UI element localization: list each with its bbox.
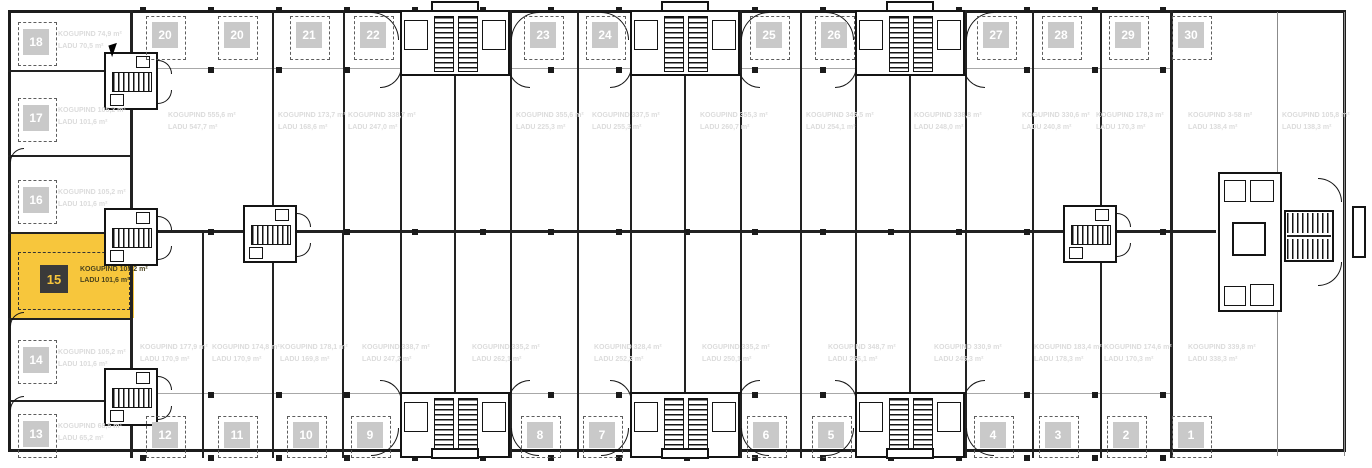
wall-corridor-outer [1344, 12, 1345, 456]
unit-area-label: KOGUPIND 105,2 m² [58, 347, 126, 358]
unit-badge-2[interactable]: 2 [1113, 422, 1139, 448]
corridor-link [909, 76, 911, 230]
hall-area-label: LADU 169,8 m² [280, 354, 329, 365]
unit-badge-21[interactable]: 21 [296, 22, 322, 48]
column-marker [1160, 7, 1166, 13]
wall-top-bay [577, 10, 579, 232]
hall-area-label: KOGUPIND 178,3 m² [1096, 110, 1164, 121]
wall-top-bay [740, 10, 742, 232]
vestibule [886, 1, 934, 12]
column-marker [1092, 67, 1098, 73]
stair-flight [1287, 213, 1331, 233]
unit-badge-3[interactable]: 3 [1045, 422, 1071, 448]
wall-bottom-bay [800, 232, 802, 458]
wc-room [859, 20, 883, 50]
unit-badge-18[interactable]: 18 [23, 29, 49, 55]
column-marker [276, 455, 282, 461]
unit-badge-27[interactable]: 27 [983, 22, 1009, 48]
wall-top-bay [965, 10, 967, 232]
column-marker [344, 7, 350, 13]
column-marker [1024, 67, 1030, 73]
corridor-link [454, 232, 456, 392]
unit-badge-12[interactable]: 12 [152, 422, 178, 448]
column-marker [820, 67, 826, 73]
wc-room [275, 209, 289, 221]
wc-room [1069, 247, 1083, 259]
hall-area-label: LADU 245,3 m² [934, 354, 983, 365]
column-marker [820, 229, 826, 235]
wc-room [1095, 209, 1109, 221]
wc-room [937, 402, 961, 432]
column-marker [1092, 392, 1098, 398]
wc-room [482, 20, 506, 50]
wall-right-section [1170, 10, 1173, 458]
hall-area-label: LADU 247,2 m² [362, 354, 411, 365]
wc-room [249, 247, 263, 259]
unit-badge-9[interactable]: 9 [357, 422, 383, 448]
hall-area-label: KOGUPIND 337,5 m² [592, 110, 660, 121]
stair-flight [688, 16, 708, 72]
unit-badge-1[interactable]: 1 [1178, 422, 1204, 448]
column-marker [548, 392, 554, 398]
hall-area-label: LADU 260,7 m² [700, 122, 749, 133]
unit-area-label: KOGUPIND 105,2 m² [58, 187, 126, 198]
hall-area-label: LADU 254,1 m² [806, 122, 855, 133]
stair-divider [1287, 235, 1331, 237]
unit-badge-14[interactable]: 14 [23, 347, 49, 373]
stair-flight [1287, 239, 1331, 259]
stair-flight [664, 16, 684, 72]
wc-room [404, 402, 428, 432]
wc-room [136, 212, 150, 224]
stair-flight [913, 16, 933, 72]
unit-badge-26[interactable]: 26 [821, 22, 847, 48]
column-marker [1092, 7, 1098, 13]
entrance-vestibule [1352, 206, 1366, 258]
column-marker [208, 455, 214, 461]
column-marker [1024, 229, 1030, 235]
wc-room [634, 402, 658, 432]
hall-area-label: KOGUPIND 339,8 m² [1188, 342, 1256, 353]
column-marker [1160, 67, 1166, 73]
vestibule [431, 448, 479, 459]
column-marker [140, 7, 146, 13]
unit-badge-20[interactable]: 20 [224, 22, 250, 48]
corridor-link [454, 76, 456, 230]
hall-area-label: KOGUPIND 330,6 m² [1022, 110, 1090, 121]
wall-bottom-bay [577, 232, 579, 458]
column-marker [752, 229, 758, 235]
unit-badge-25[interactable]: 25 [756, 22, 782, 48]
column-marker [1024, 7, 1030, 13]
unit-badge-24[interactable]: 24 [592, 22, 618, 48]
hall-area-label: LADU 138,3 m² [1282, 122, 1331, 133]
column-marker [548, 7, 554, 13]
hall-area-label: KOGUPIND 178,1 m² [280, 342, 348, 353]
stair-flight [458, 16, 478, 72]
floor-plan: 15 KOGUPIND 105,2 m² LADU 101,6 m² 20202… [0, 0, 1372, 468]
wc-room [1250, 284, 1274, 306]
wc-room [110, 250, 124, 262]
unit-area-label: LADU 65,2 m² [58, 433, 104, 444]
stair-flight [889, 398, 909, 454]
wall-top-bay [1032, 10, 1034, 232]
unit-badge-4[interactable]: 4 [980, 422, 1006, 448]
hall-area-label: KOGUPIND 105,8 m² [1282, 110, 1350, 121]
hall-area-label: KOGUPIND 335,2 m² [472, 342, 540, 353]
column-marker [956, 229, 962, 235]
unit-badge-30[interactable]: 30 [1178, 22, 1204, 48]
hall-area-label: KOGUPIND 3-58 m² [1188, 110, 1252, 121]
hall-area-label: KOGUPIND 328,4 m² [594, 342, 662, 353]
column-marker [1160, 455, 1166, 461]
unit-badge-23[interactable]: 23 [530, 22, 556, 48]
unit-badge-22[interactable]: 22 [360, 22, 386, 48]
column-marker [616, 7, 622, 13]
hall-area-label: LADU 262,1 m² [472, 354, 521, 365]
column-marker [344, 229, 350, 235]
hall-area-label: KOGUPIND 177,9 m² [140, 342, 208, 353]
hall-area-label: KOGUPIND 346,5 m² [806, 110, 874, 121]
corridor-link [909, 232, 911, 392]
wc-room [1224, 180, 1246, 202]
unit-area-label: LADU 101,6 m² [58, 359, 107, 370]
stair-flight [913, 398, 933, 454]
wall-top-bay [1100, 10, 1102, 232]
unit-badge-29[interactable]: 29 [1115, 22, 1141, 48]
corridor-link [684, 76, 686, 230]
hall-area-label: LADU 225,3 m² [516, 122, 565, 133]
column-marker [480, 229, 486, 235]
unit-area-label: KOGUPIND 68,5 m² [58, 421, 122, 432]
column-marker [208, 392, 214, 398]
stair-flight [1071, 225, 1111, 245]
stair-flight [458, 398, 478, 454]
wall-left-divider [8, 155, 132, 157]
column-marker [208, 229, 214, 235]
hall-area-label: LADU 547,7 m² [168, 122, 217, 133]
column-marker [276, 7, 282, 13]
hall-area-label: KOGUPIND 348,7 m² [828, 342, 896, 353]
wall-top-bay [272, 10, 274, 232]
hall-area-label: LADU 256,1 m² [828, 354, 877, 365]
hall-area-label: KOGUPIND 555,6 m² [168, 110, 236, 121]
stair-flight [434, 16, 454, 72]
unit-badge-11[interactable]: 11 [224, 422, 250, 448]
stair-flight [251, 225, 291, 245]
column-marker [276, 67, 282, 73]
column-marker [208, 67, 214, 73]
wall-top-bay [343, 10, 345, 232]
stair-flight [664, 398, 684, 454]
hall-area-label: KOGUPIND 355,3 m² [700, 110, 768, 121]
unit-badge-10[interactable]: 10 [293, 422, 319, 448]
wc-room [712, 402, 736, 432]
column-marker [1092, 455, 1098, 461]
unit-badge-5[interactable]: 5 [818, 422, 844, 448]
vestibule [431, 1, 479, 12]
wc-room [482, 402, 506, 432]
stair-flight [112, 228, 152, 248]
wc-room [404, 20, 428, 50]
stair-flight [112, 388, 152, 408]
hall-area-label: LADU 178,3 m² [1034, 354, 1083, 365]
unit-area-label: LADU 101,6 m² [58, 117, 107, 128]
column-marker [344, 392, 350, 398]
column-marker [548, 229, 554, 235]
wall-top-bay [510, 10, 512, 232]
wc-room [136, 372, 150, 384]
column-marker [344, 67, 350, 73]
hall-area-label: KOGUPIND 338,7 m² [348, 110, 416, 121]
hall-area-label: KOGUPIND 355,6 m² [516, 110, 584, 121]
unit-badge-17[interactable]: 17 [23, 105, 49, 131]
unit-badge-13[interactable]: 13 [23, 421, 49, 447]
hall-area-label: KOGUPIND 173,7 m² [278, 110, 346, 121]
unit-area-label: KOGUPIND 74,9 m² [58, 29, 122, 40]
hall-area-label: KOGUPIND 330,9 m² [934, 342, 1002, 353]
column-marker [1024, 392, 1030, 398]
hall-area-label: LADU 170,3 m² [1096, 122, 1145, 133]
column-marker [1160, 392, 1166, 398]
stair-flight [112, 72, 152, 92]
column-marker [1160, 229, 1166, 235]
column-marker [616, 229, 622, 235]
hall-area-label: LADU 338,3 m² [1188, 354, 1237, 365]
column-marker [412, 229, 418, 235]
wc-room [634, 20, 658, 50]
column-marker [1024, 455, 1030, 461]
column-marker [344, 455, 350, 461]
column-marker [208, 7, 214, 13]
vestibule [886, 448, 934, 459]
hall-area-label: KOGUPIND 183,4 m² [1034, 342, 1102, 353]
hall-area-label: LADU 240,8 m² [1022, 122, 1071, 133]
column-marker [276, 392, 282, 398]
unit-area-label: LADU 101,6 m² [58, 199, 107, 210]
hall-area-label: KOGUPIND 174,8 m² [212, 342, 280, 353]
vestibule [661, 448, 709, 459]
hall-area-label: LADU 250,1 m² [702, 354, 751, 365]
hall-area-label: LADU 252,2 m² [594, 354, 643, 365]
unit-area-label: LADU 70,5 m² [58, 41, 104, 52]
hall-area-label: LADU 248,0 m² [914, 122, 963, 133]
stair-flight [889, 16, 909, 72]
hall-area-label: LADU 138,4 m² [1188, 122, 1237, 133]
wc-room [1250, 180, 1274, 202]
hall-area-label: KOGUPIND 338,7 m² [362, 342, 430, 353]
column-marker [888, 229, 894, 235]
hall-area-label: LADU 170,3 m² [1104, 354, 1153, 365]
column-marker [820, 392, 826, 398]
column-marker [752, 7, 758, 13]
wc-room [712, 20, 736, 50]
hall-area-label: LADU 170,9 m² [140, 354, 189, 365]
unit-badge-8[interactable]: 8 [527, 422, 553, 448]
vestibule [661, 1, 709, 12]
hall-area-label: KOGUPIND 338,8 m² [914, 110, 982, 121]
hall-area-label: LADU 168,6 m² [278, 122, 327, 133]
wc-room [937, 20, 961, 50]
wall-left-divider [8, 318, 132, 320]
unit-badge-28[interactable]: 28 [1048, 22, 1074, 48]
stair-flight [688, 398, 708, 454]
corridor-link [684, 232, 686, 392]
hall-area-label: KOGUPIND 174,6 m² [1104, 342, 1172, 353]
wc-room [1224, 286, 1246, 306]
wc-room [859, 402, 883, 432]
column-marker [548, 67, 554, 73]
unit-badge-20[interactable]: 20 [152, 22, 178, 48]
elevator [1232, 222, 1266, 256]
stair-flight [434, 398, 454, 454]
hall-area-label: KOGUPIND 335,2 m² [702, 342, 770, 353]
hall-area-label: LADU 255,3 m² [592, 122, 641, 133]
unit-badge-7[interactable]: 7 [589, 422, 615, 448]
hall-area-label: LADU 170,9 m² [212, 354, 261, 365]
unit-badge-6[interactable]: 6 [753, 422, 779, 448]
hall-area-label: LADU 247,0 m² [348, 122, 397, 133]
unit-badge-16[interactable]: 16 [23, 187, 49, 213]
unit-area-label: KOGUPIND 105,2 m² [58, 105, 126, 116]
wall-top-bay [800, 10, 802, 232]
